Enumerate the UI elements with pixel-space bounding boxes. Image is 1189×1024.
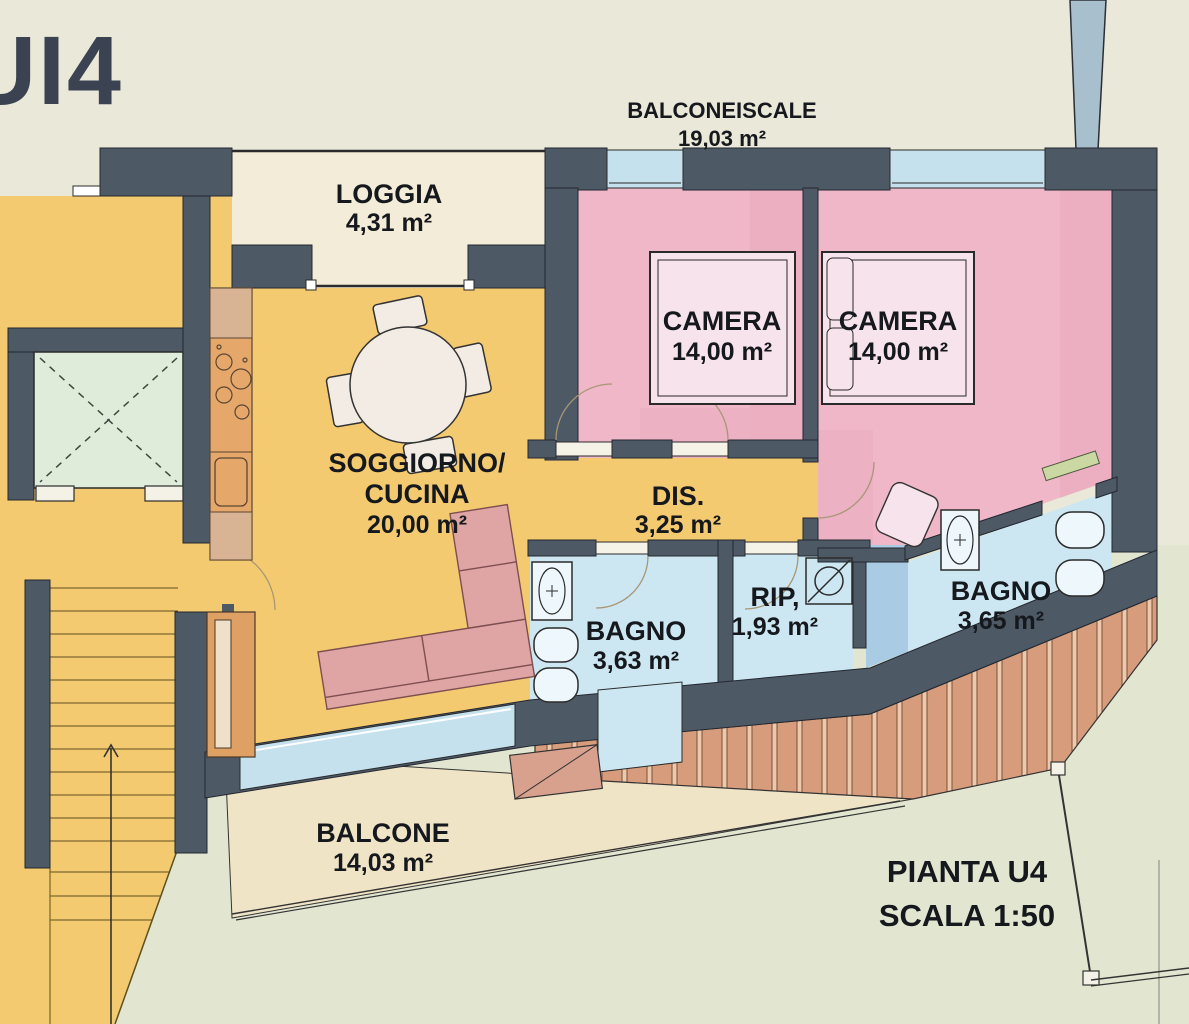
floor-plan-drawing: UI4 BALCONEISCALE 19,03 m² LOGGIA 4,31 m… <box>0 0 1189 1024</box>
elevator-door <box>36 486 74 501</box>
wardrobe <box>207 604 255 757</box>
room-area-balcone: 14,03 m² <box>333 849 433 877</box>
room-area-bagno-2: 3,65 m² <box>958 607 1044 635</box>
room-area-bagno-1: 3,63 m² <box>593 647 679 675</box>
room-area-loggia: 4,31 m² <box>346 209 432 237</box>
room-camera-2-shade <box>818 430 873 550</box>
room-label-balcone-scale: BALCONEISCALE <box>627 98 816 123</box>
toilet <box>534 628 578 662</box>
window <box>890 150 1045 188</box>
room-area-camera-2: 14,00 m² <box>848 338 948 366</box>
sheet-title: UI4 <box>0 16 123 125</box>
bidet <box>534 668 578 702</box>
bidet <box>1056 560 1104 596</box>
elevator-door <box>145 486 183 501</box>
door-threshold <box>745 542 798 554</box>
room-label-camera-2: CAMERA <box>839 306 958 336</box>
room-area-balcone-scale: 19,03 m² <box>678 126 766 151</box>
room-area-rip: 1,93 m² <box>732 613 818 641</box>
room-label-bagno-2: BAGNO <box>951 576 1052 606</box>
room-label-rip: RIP, <box>750 582 799 612</box>
toilet <box>1056 512 1104 548</box>
kitchen-counter <box>210 288 252 560</box>
door-threshold <box>596 542 648 554</box>
room-camera-2-shade <box>1060 188 1112 498</box>
door-threshold <box>556 442 612 456</box>
room-area-soggiorno: 20,00 m² <box>367 511 467 539</box>
door-threshold <box>672 442 728 456</box>
bathroom-bay-window <box>598 682 682 772</box>
bathroom-fixtures-bagno-1 <box>532 562 578 702</box>
room-label-camera-1: CAMERA <box>663 306 782 336</box>
elevator-shaft <box>8 328 208 501</box>
entrance-floor <box>175 540 210 616</box>
room-area-dis: 3,25 m² <box>635 511 721 539</box>
room-label-bagno-1: BAGNO <box>586 616 687 646</box>
room-label-dis: DIS. <box>652 481 705 511</box>
plan-scale: SCALA 1:50 <box>879 898 1055 933</box>
floor-plan-canvas: UI4 BALCONEISCALE 19,03 m² LOGGIA 4,31 m… <box>0 0 1189 1024</box>
room-label-balcone: BALCONE <box>316 818 450 848</box>
shower-area <box>866 545 908 668</box>
window <box>607 150 683 188</box>
room-label-soggiorno: SOGGIORNO/ <box>328 448 506 478</box>
room-area-camera-1: 14,00 m² <box>672 338 772 366</box>
room-label-cucina: CUCINA <box>365 479 470 509</box>
plan-title: PIANTA U4 <box>887 854 1048 889</box>
room-label-loggia: LOGGIA <box>336 179 443 209</box>
